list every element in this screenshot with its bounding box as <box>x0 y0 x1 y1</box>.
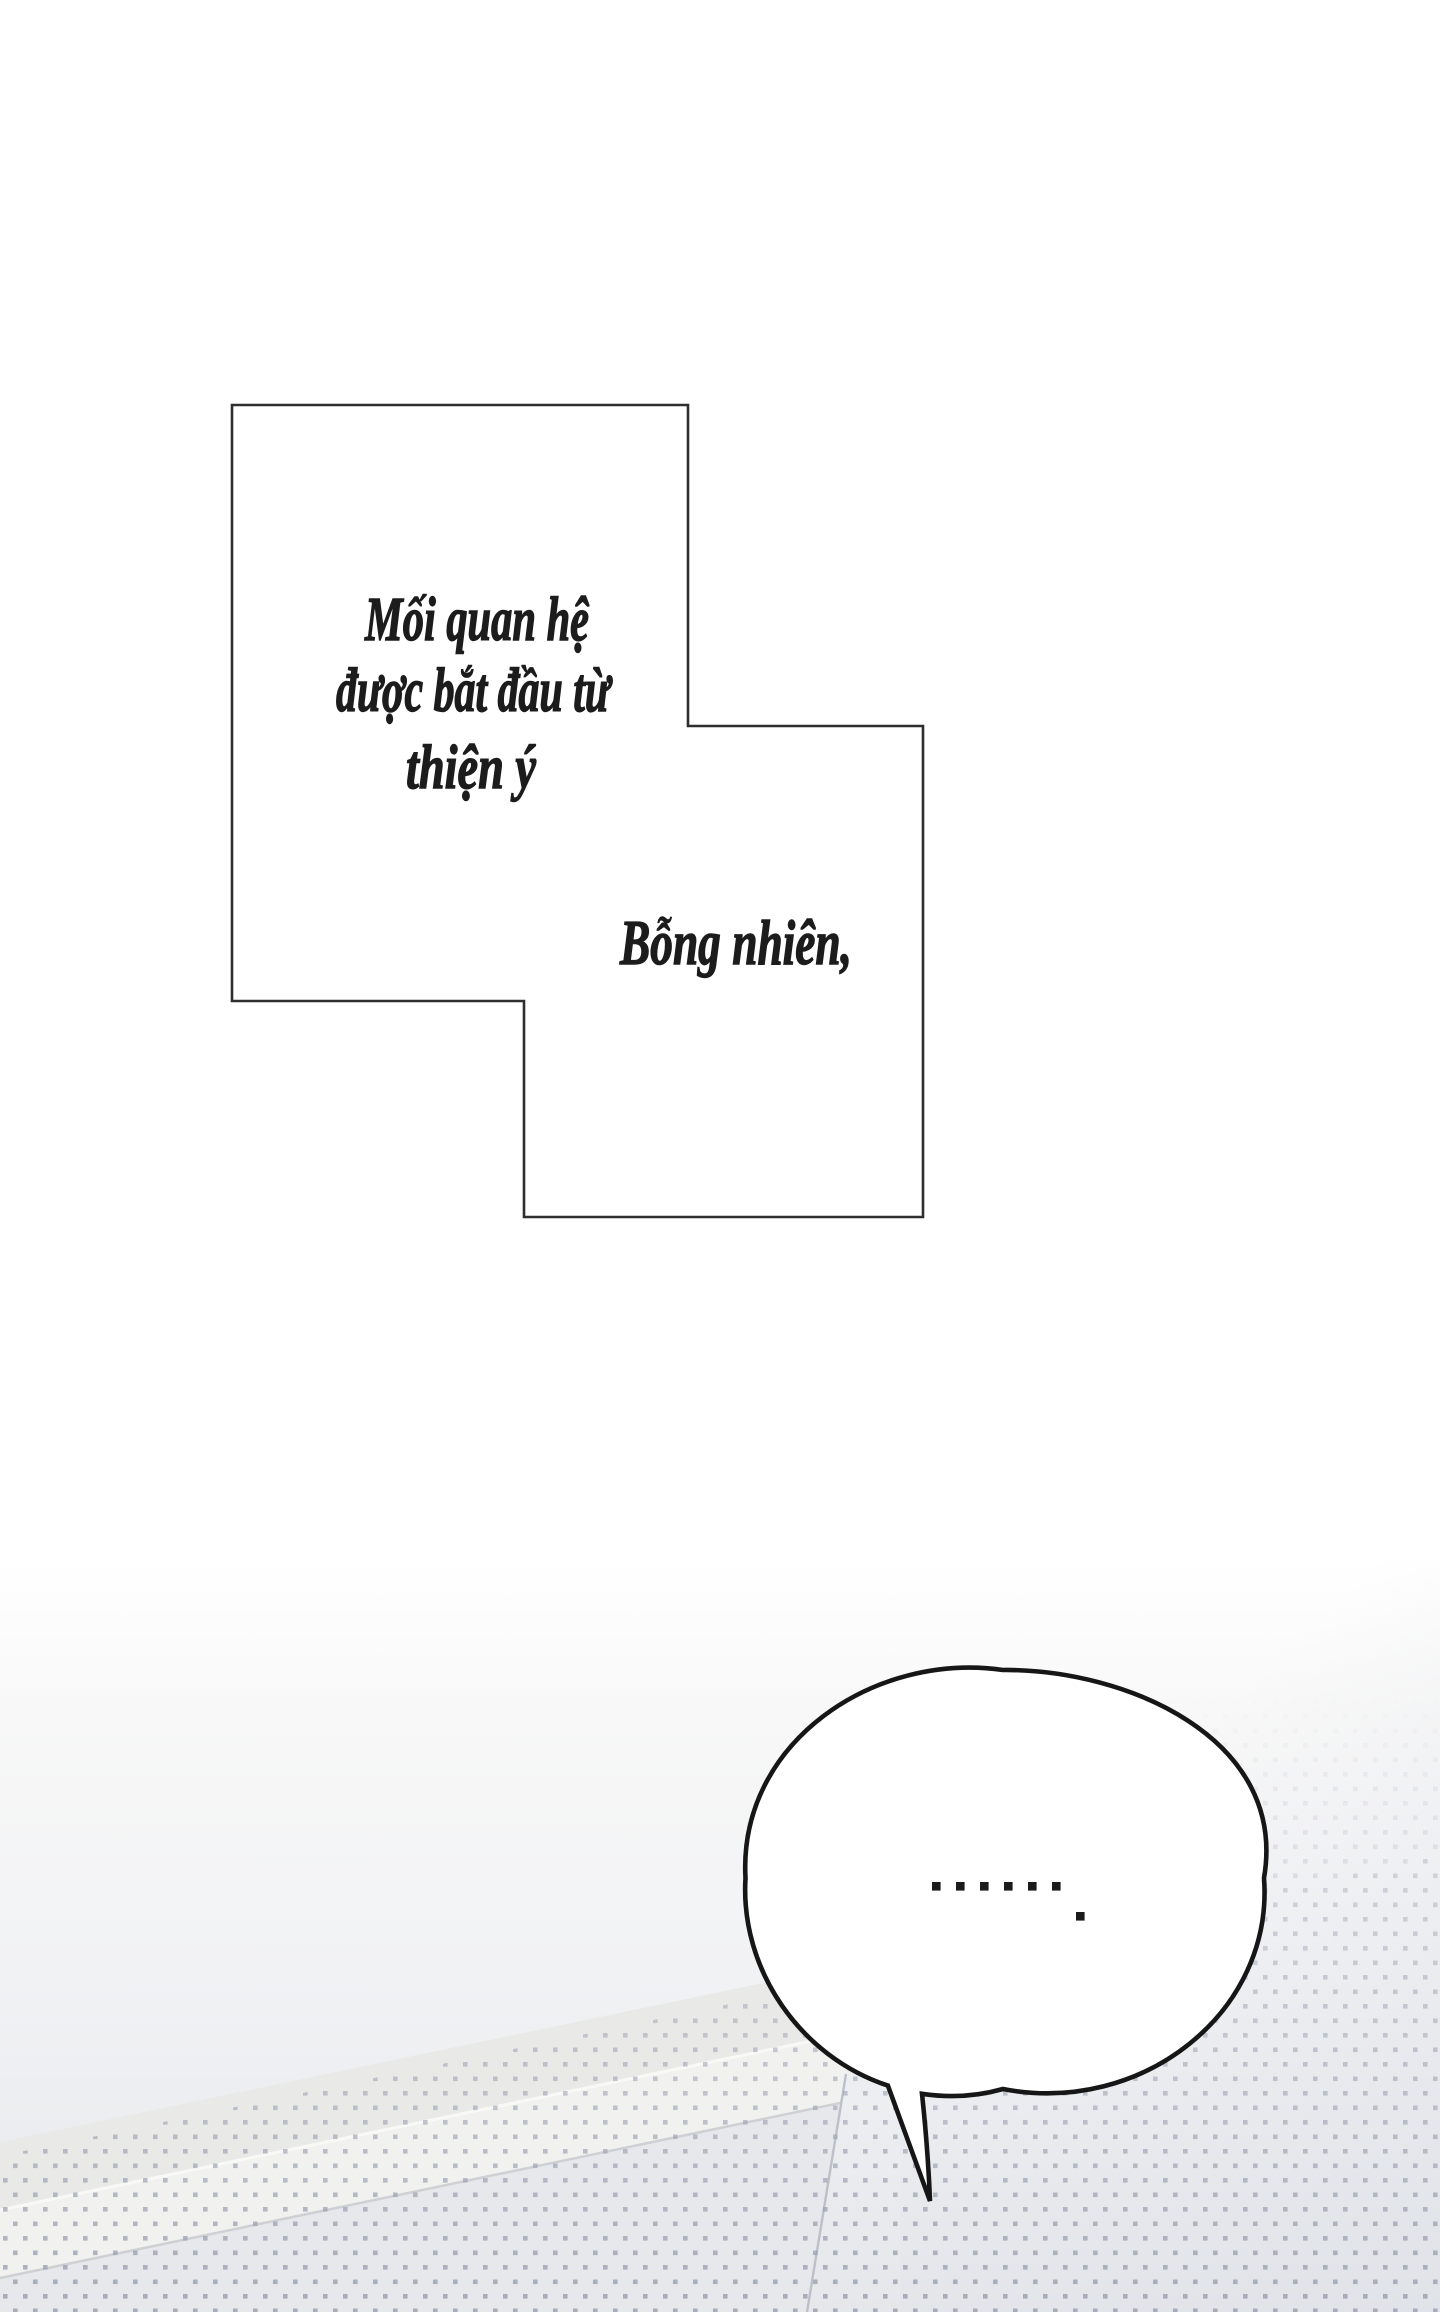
svg-text:Mối quan hệ: Mối quan hệ <box>364 586 589 654</box>
svg-text:thiện ý: thiện ý <box>406 734 536 802</box>
svg-text:được bắt đầu từ: được bắt đầu từ <box>336 657 613 725</box>
svg-text:Bỗng nhiên,: Bỗng nhiên, <box>619 907 852 978</box>
